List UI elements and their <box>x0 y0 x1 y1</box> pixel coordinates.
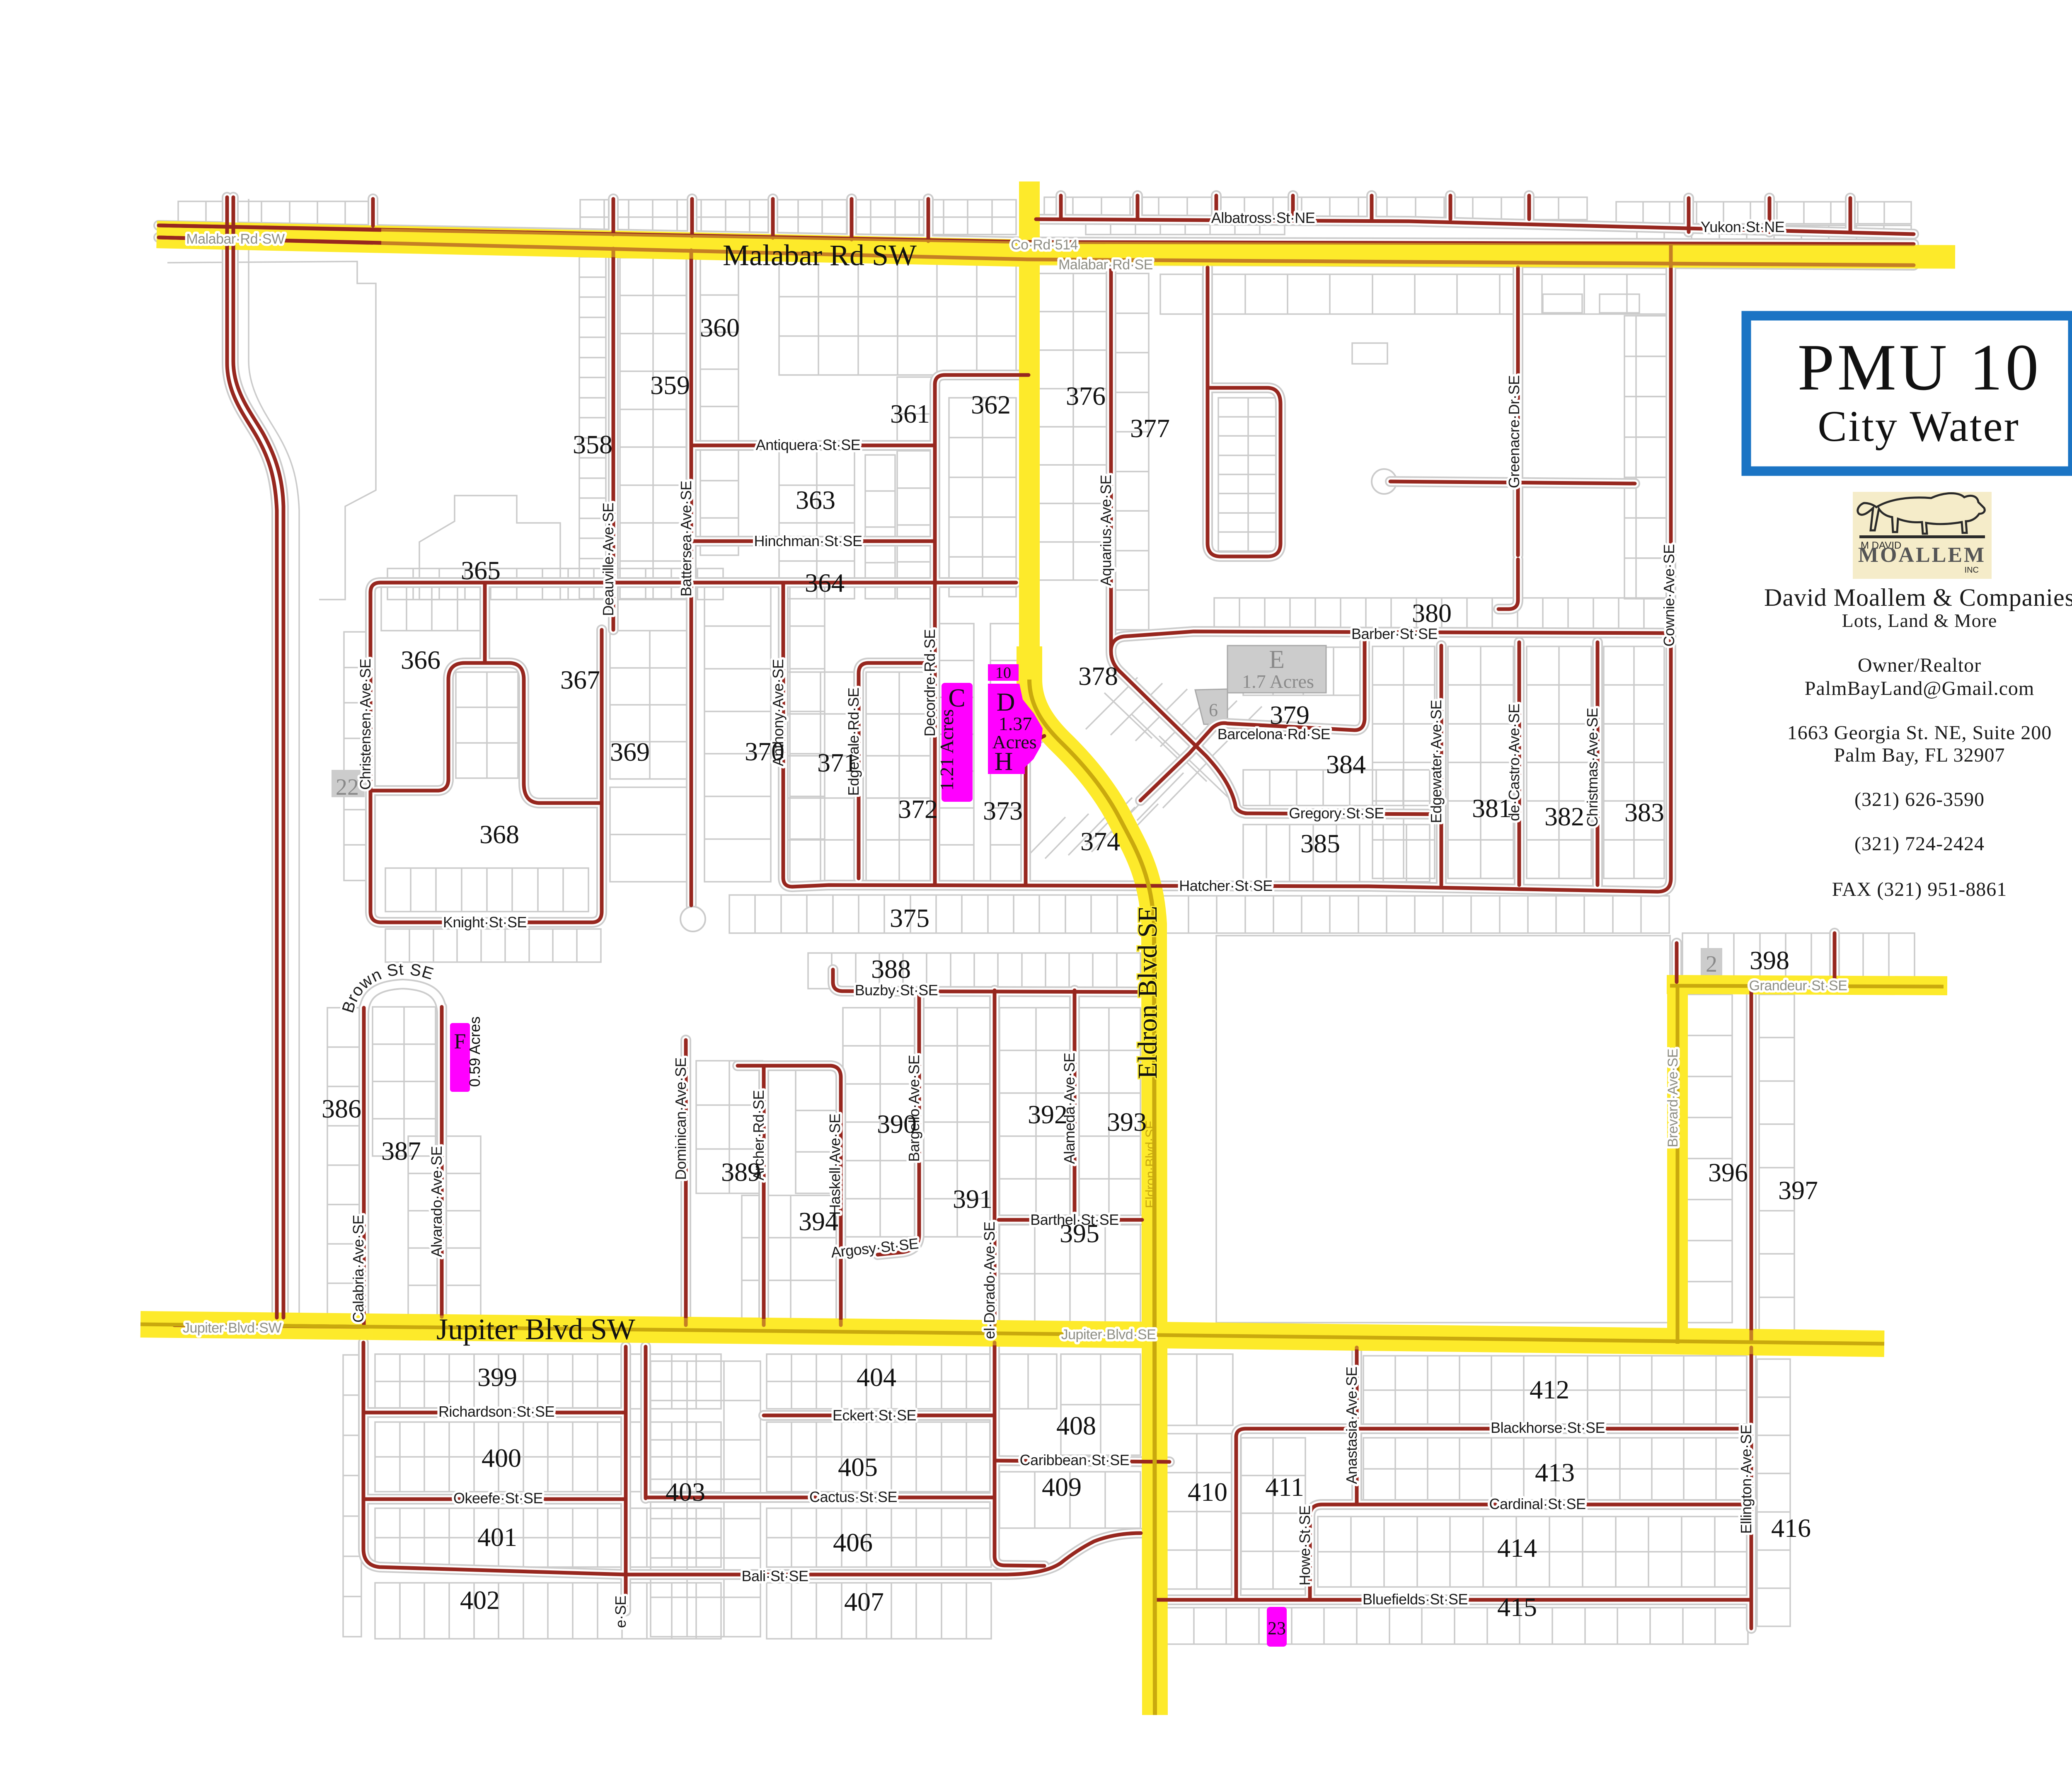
svg-text:10: 10 <box>995 664 1011 682</box>
svg-text:City Water: City Water <box>1818 402 2020 450</box>
svg-text:Hatcher·St·SE: Hatcher·St·SE <box>1179 877 1273 894</box>
svg-text:404: 404 <box>857 1362 896 1392</box>
svg-text:Malabar·Rd·SW: Malabar·Rd·SW <box>186 231 285 247</box>
svg-text:2: 2 <box>1706 951 1717 977</box>
svg-text:Okeefe·St·SE: Okeefe·St·SE <box>453 1490 543 1507</box>
svg-text:371: 371 <box>817 748 857 777</box>
svg-text:Jupiter Blvd SW: Jupiter Blvd SW <box>436 1313 635 1346</box>
svg-text:1.21 Acres: 1.21 Acres <box>936 709 957 791</box>
svg-text:Alvarado·Ave·SE: Alvarado·Ave·SE <box>428 1146 445 1257</box>
svg-text:FAX (321) 951-8861: FAX (321) 951-8861 <box>1832 878 2007 900</box>
svg-text:392: 392 <box>1028 1100 1067 1129</box>
svg-text:1.7 Acres: 1.7 Acres <box>1242 671 1314 692</box>
svg-text:361: 361 <box>890 399 930 428</box>
svg-text:Christensen·Ave·SE: Christensen·Ave·SE <box>357 659 374 790</box>
svg-text:Cactus·St·SE: Cactus·St·SE <box>809 1488 897 1505</box>
svg-text:362: 362 <box>971 390 1011 419</box>
svg-text:D: D <box>997 688 1015 716</box>
svg-text:e·SE: e·SE <box>612 1596 629 1628</box>
svg-text:Jupiter·Blvd·SW: Jupiter·Blvd·SW <box>183 1320 282 1336</box>
svg-text:Richardson·St·SE: Richardson·St·SE <box>438 1403 554 1420</box>
svg-text:el·Dorado·Ave·SE: el·Dorado·Ave·SE <box>981 1222 998 1339</box>
svg-text:365: 365 <box>461 556 501 585</box>
svg-text:415: 415 <box>1497 1592 1537 1622</box>
svg-text:390: 390 <box>877 1109 917 1139</box>
svg-text:Co·Rd·514: Co·Rd·514 <box>1011 237 1078 253</box>
svg-text:(321) 626-3590: (321) 626-3590 <box>1854 789 1985 810</box>
svg-text:MOALLEM: MOALLEM <box>1858 543 1986 567</box>
svg-text:Jupiter·Blvd·SE: Jupiter·Blvd·SE <box>1061 1327 1156 1342</box>
svg-text:Christmas·Ave·SE: Christmas·Ave·SE <box>1584 708 1601 827</box>
svg-text:379: 379 <box>1270 700 1310 730</box>
svg-text:Palm Bay, FL 32907: Palm Bay, FL 32907 <box>1834 744 2005 766</box>
svg-text:Cownie·Ave·SE: Cownie·Ave·SE <box>1661 544 1677 647</box>
svg-text:375: 375 <box>890 903 929 933</box>
svg-text:367: 367 <box>560 665 600 694</box>
svg-text:(321) 724-2424: (321) 724-2424 <box>1854 833 1985 855</box>
svg-text:407: 407 <box>844 1587 884 1616</box>
svg-text:382: 382 <box>1544 802 1584 831</box>
svg-text:Bali·St·SE: Bali·St·SE <box>741 1567 808 1584</box>
svg-text:366: 366 <box>401 645 441 675</box>
svg-text:387: 387 <box>381 1136 421 1166</box>
svg-text:372: 372 <box>898 794 938 824</box>
svg-text:402: 402 <box>460 1585 500 1615</box>
svg-text:Howe·St·SE: Howe·St·SE <box>1296 1505 1313 1585</box>
svg-text:364: 364 <box>805 568 845 597</box>
svg-text:398: 398 <box>1750 946 1789 975</box>
svg-text:Buzby·St·SE: Buzby·St·SE <box>855 982 938 999</box>
svg-text:373: 373 <box>983 796 1023 825</box>
svg-text:6: 6 <box>1209 700 1218 720</box>
svg-text:368: 368 <box>479 820 519 849</box>
svg-text:F: F <box>454 1030 466 1053</box>
svg-text:Blackhorse·St·SE: Blackhorse·St·SE <box>1491 1419 1605 1436</box>
svg-text:Grandeur·St·SE: Grandeur·St·SE <box>1749 978 1847 994</box>
svg-text:369: 369 <box>610 737 650 767</box>
svg-text:409: 409 <box>1042 1472 1082 1502</box>
svg-text:Bluefields·St·SE: Bluefields·St·SE <box>1363 1591 1468 1608</box>
svg-text:Edgevale·Rd·SE: Edgevale·Rd·SE <box>845 687 862 796</box>
svg-text:406: 406 <box>833 1528 873 1557</box>
svg-text:Decordre·Rd·SE: Decordre·Rd·SE <box>921 629 938 736</box>
svg-text:413: 413 <box>1535 1458 1575 1487</box>
svg-text:Hinchman·St·SE: Hinchman·St·SE <box>754 532 862 549</box>
svg-text:403: 403 <box>666 1477 705 1507</box>
svg-text:411: 411 <box>1265 1472 1304 1502</box>
svg-text:22: 22 <box>336 774 359 800</box>
svg-text:416: 416 <box>1771 1513 1811 1543</box>
svg-text:370: 370 <box>745 737 784 766</box>
svg-text:Albatross·St·NE: Albatross·St·NE <box>1211 209 1315 226</box>
svg-text:389: 389 <box>721 1157 761 1187</box>
svg-text:396: 396 <box>1708 1158 1748 1187</box>
svg-text:Brevard·Ave·SE: Brevard·Ave·SE <box>1665 1049 1681 1147</box>
svg-text:401: 401 <box>477 1522 517 1552</box>
svg-text:395: 395 <box>1060 1219 1099 1248</box>
svg-text:Cardinal·St·SE: Cardinal·St·SE <box>1489 1495 1585 1512</box>
svg-text:374: 374 <box>1080 827 1120 856</box>
svg-text:408: 408 <box>1056 1411 1096 1440</box>
svg-text:377: 377 <box>1130 414 1170 443</box>
svg-text:C: C <box>948 684 965 712</box>
svg-text:376: 376 <box>1066 381 1106 411</box>
svg-text:385: 385 <box>1300 829 1340 858</box>
svg-text:358: 358 <box>573 430 612 459</box>
svg-text:380: 380 <box>1412 598 1452 628</box>
svg-text:399: 399 <box>477 1362 517 1392</box>
svg-text:394: 394 <box>799 1207 838 1236</box>
svg-text:Gregory·St·SE: Gregory·St·SE <box>1289 805 1384 822</box>
svg-text:363: 363 <box>796 485 835 515</box>
svg-text:1663 Georgia St. NE, Suite 200: 1663 Georgia St. NE, Suite 200 <box>1787 722 2052 744</box>
svg-text:383: 383 <box>1624 798 1664 827</box>
svg-text:410: 410 <box>1188 1477 1227 1507</box>
svg-text:Deauville·Ave·SE: Deauville·Ave·SE <box>600 503 617 616</box>
svg-text:381: 381 <box>1472 793 1512 823</box>
svg-text:391: 391 <box>953 1184 992 1214</box>
svg-text:Calabria·Ave·SE: Calabria·Ave·SE <box>350 1215 367 1323</box>
svg-text:Barber·St·SE: Barber·St·SE <box>1351 625 1438 642</box>
svg-text:384: 384 <box>1326 750 1366 779</box>
svg-text:Anastasia·Ave·SE: Anastasia·Ave·SE <box>1343 1367 1360 1484</box>
svg-text:Haskell·Ave·SE: Haskell·Ave·SE <box>826 1114 843 1215</box>
svg-text:Eckert·St·SE: Eckert·St·SE <box>833 1407 916 1424</box>
svg-text:Malabar Rd SW: Malabar Rd SW <box>723 239 917 272</box>
svg-text:Owner/Realtor: Owner/Realtor <box>1858 654 1981 676</box>
svg-text:388: 388 <box>871 954 911 984</box>
svg-text:Yukon·St·NE: Yukon·St·NE <box>1701 218 1785 235</box>
svg-text:Bargello·Ave·SE: Bargello·Ave·SE <box>905 1055 922 1162</box>
svg-text:Malabar·Rd·SE: Malabar·Rd·SE <box>1058 257 1153 273</box>
svg-text:Caribbean·St·SE: Caribbean·St·SE <box>1020 1451 1130 1468</box>
svg-text:386: 386 <box>322 1094 361 1123</box>
svg-text:400: 400 <box>482 1443 521 1473</box>
svg-text:360: 360 <box>700 313 740 342</box>
svg-text:David Moallem & Companies: David Moallem & Companies <box>1764 584 2072 611</box>
svg-text:Antiquera·St·SE: Antiquera·St·SE <box>756 436 861 453</box>
svg-text:Knight·St·SE: Knight·St·SE <box>443 914 527 931</box>
svg-text:PalmBayLand@Gmail.com: PalmBayLand@Gmail.com <box>1805 677 2034 699</box>
svg-text:H: H <box>995 747 1013 776</box>
svg-text:405: 405 <box>838 1452 878 1482</box>
svg-text:Aquarius·Ave·SE: Aquarius·Ave·SE <box>1097 475 1114 586</box>
svg-text:23: 23 <box>1268 1618 1286 1638</box>
svg-text:397: 397 <box>1778 1176 1818 1205</box>
svg-text:Ellington·Ave·SE: Ellington·Ave·SE <box>1738 1425 1755 1534</box>
svg-text:INC: INC <box>1965 566 1979 575</box>
svg-text:Eldron Blvd SE: Eldron Blvd SE <box>1133 906 1163 1079</box>
svg-text:393: 393 <box>1107 1107 1147 1137</box>
svg-text:359: 359 <box>650 370 690 400</box>
svg-text:Battersea·Ave·SE: Battersea·Ave·SE <box>678 481 695 596</box>
svg-text:Edgewater·Ave·SE: Edgewater·Ave·SE <box>1428 700 1445 823</box>
svg-text:378: 378 <box>1078 661 1118 691</box>
svg-text:PMU 10: PMU 10 <box>1798 330 2042 404</box>
svg-text:0.59 Acres: 0.59 Acres <box>466 1016 483 1087</box>
svg-text:Dominican·Ave·SE: Dominican·Ave·SE <box>672 1057 689 1180</box>
svg-text:412: 412 <box>1530 1375 1569 1404</box>
svg-text:Lots, Land & More: Lots, Land & More <box>1842 610 1997 631</box>
svg-text:Greenacre·Dr·SE: Greenacre·Dr·SE <box>1506 375 1523 489</box>
svg-text:E: E <box>1269 646 1285 674</box>
svg-text:414: 414 <box>1497 1533 1537 1563</box>
